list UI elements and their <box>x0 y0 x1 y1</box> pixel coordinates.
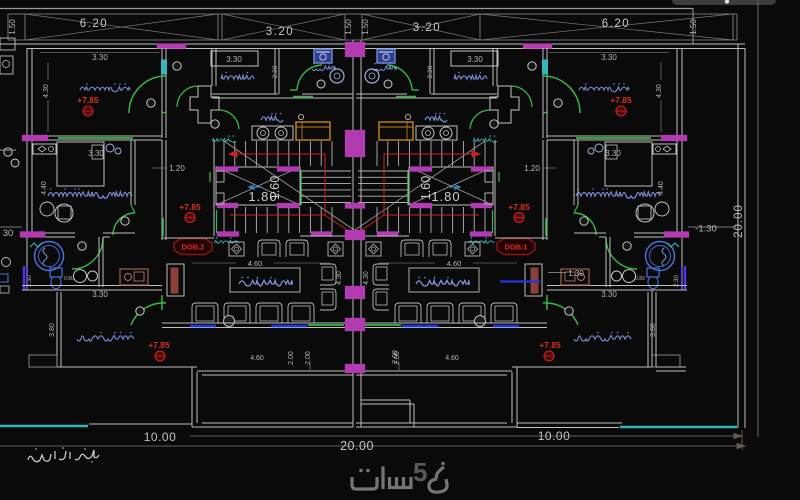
svg-text:1.60: 1.60 <box>419 176 433 200</box>
svg-text:2.20: 2.20 <box>272 65 279 78</box>
svg-text:1.60: 1.60 <box>268 176 282 200</box>
svg-text:2.00: 2.00 <box>392 350 399 364</box>
svg-text:4.30: 4.30 <box>43 84 50 98</box>
svg-text:10.00: 10.00 <box>144 430 177 444</box>
svg-text:0.80: 0.80 <box>64 276 74 282</box>
svg-text:1.50: 1.50 <box>8 19 17 35</box>
svg-text:4.60: 4.60 <box>447 259 462 268</box>
svg-text:3.30: 3.30 <box>92 290 108 299</box>
svg-text:3.20: 3.20 <box>413 22 441 34</box>
svg-text:1.50: 1.50 <box>344 19 353 35</box>
svg-text:3.30: 3.30 <box>601 290 617 299</box>
svg-text:4.30: 4.30 <box>656 84 663 98</box>
svg-text:2.20: 2.20 <box>427 65 434 78</box>
svg-text:+7.85: +7.85 <box>610 95 632 105</box>
svg-text:3.30: 3.30 <box>601 53 617 62</box>
svg-text:3.30: 3.30 <box>467 55 483 64</box>
svg-text:3.30: 3.30 <box>88 149 104 158</box>
svg-text:20.00: 20.00 <box>340 439 374 453</box>
svg-text:1.50: 1.50 <box>689 19 698 35</box>
svg-text:1.30: 1.30 <box>568 269 584 278</box>
svg-text:4.40: 4.40 <box>658 181 665 195</box>
svg-text:3.30: 3.30 <box>226 55 242 64</box>
svg-text:6.20: 6.20 <box>80 18 108 30</box>
svg-text:+7.85: +7.85 <box>148 340 170 350</box>
svg-text:6.20: 6.20 <box>602 18 630 30</box>
svg-text:4.30: 4.30 <box>363 271 370 285</box>
svg-text:1.50: 1.50 <box>361 19 370 35</box>
svg-text:3.80: 3.80 <box>49 323 56 337</box>
svg-text:2.30: 2.30 <box>674 275 680 287</box>
svg-text:1.20: 1.20 <box>169 164 185 173</box>
svg-text:4.60: 4.60 <box>250 355 264 362</box>
svg-text:3.20: 3.20 <box>266 26 294 38</box>
svg-text:+7.85: +7.85 <box>539 340 561 350</box>
svg-text:DOB.1: DOB.1 <box>505 243 528 252</box>
svg-text:3.30: 3.30 <box>92 53 108 62</box>
svg-text:10.00: 10.00 <box>538 429 571 443</box>
svg-text:1.20: 1.20 <box>524 164 540 173</box>
svg-text:30: 30 <box>3 228 14 239</box>
svg-text:20.00: 20.00 <box>733 204 745 238</box>
svg-text:2.00: 2.00 <box>288 351 295 365</box>
svg-text:4.60: 4.60 <box>445 355 459 362</box>
svg-text:+7.85: +7.85 <box>179 202 201 212</box>
svg-text:4.60: 4.60 <box>248 259 263 268</box>
svg-text:2.00: 2.00 <box>305 351 312 365</box>
svg-text:4.30: 4.30 <box>336 271 343 285</box>
svg-text:5: 5 <box>413 457 427 487</box>
svg-text:4.40: 4.40 <box>41 181 48 195</box>
svg-text:0.80: 0.80 <box>635 276 645 282</box>
svg-text:+7.85: +7.85 <box>77 95 99 105</box>
svg-text:3.30: 3.30 <box>605 149 621 158</box>
svg-text:-1.30: -1.30 <box>695 224 717 235</box>
svg-text:DOB.2: DOB.2 <box>182 243 205 252</box>
svg-text:1.80: 1.80 <box>431 189 460 204</box>
svg-text:+7.85: +7.85 <box>508 202 530 212</box>
